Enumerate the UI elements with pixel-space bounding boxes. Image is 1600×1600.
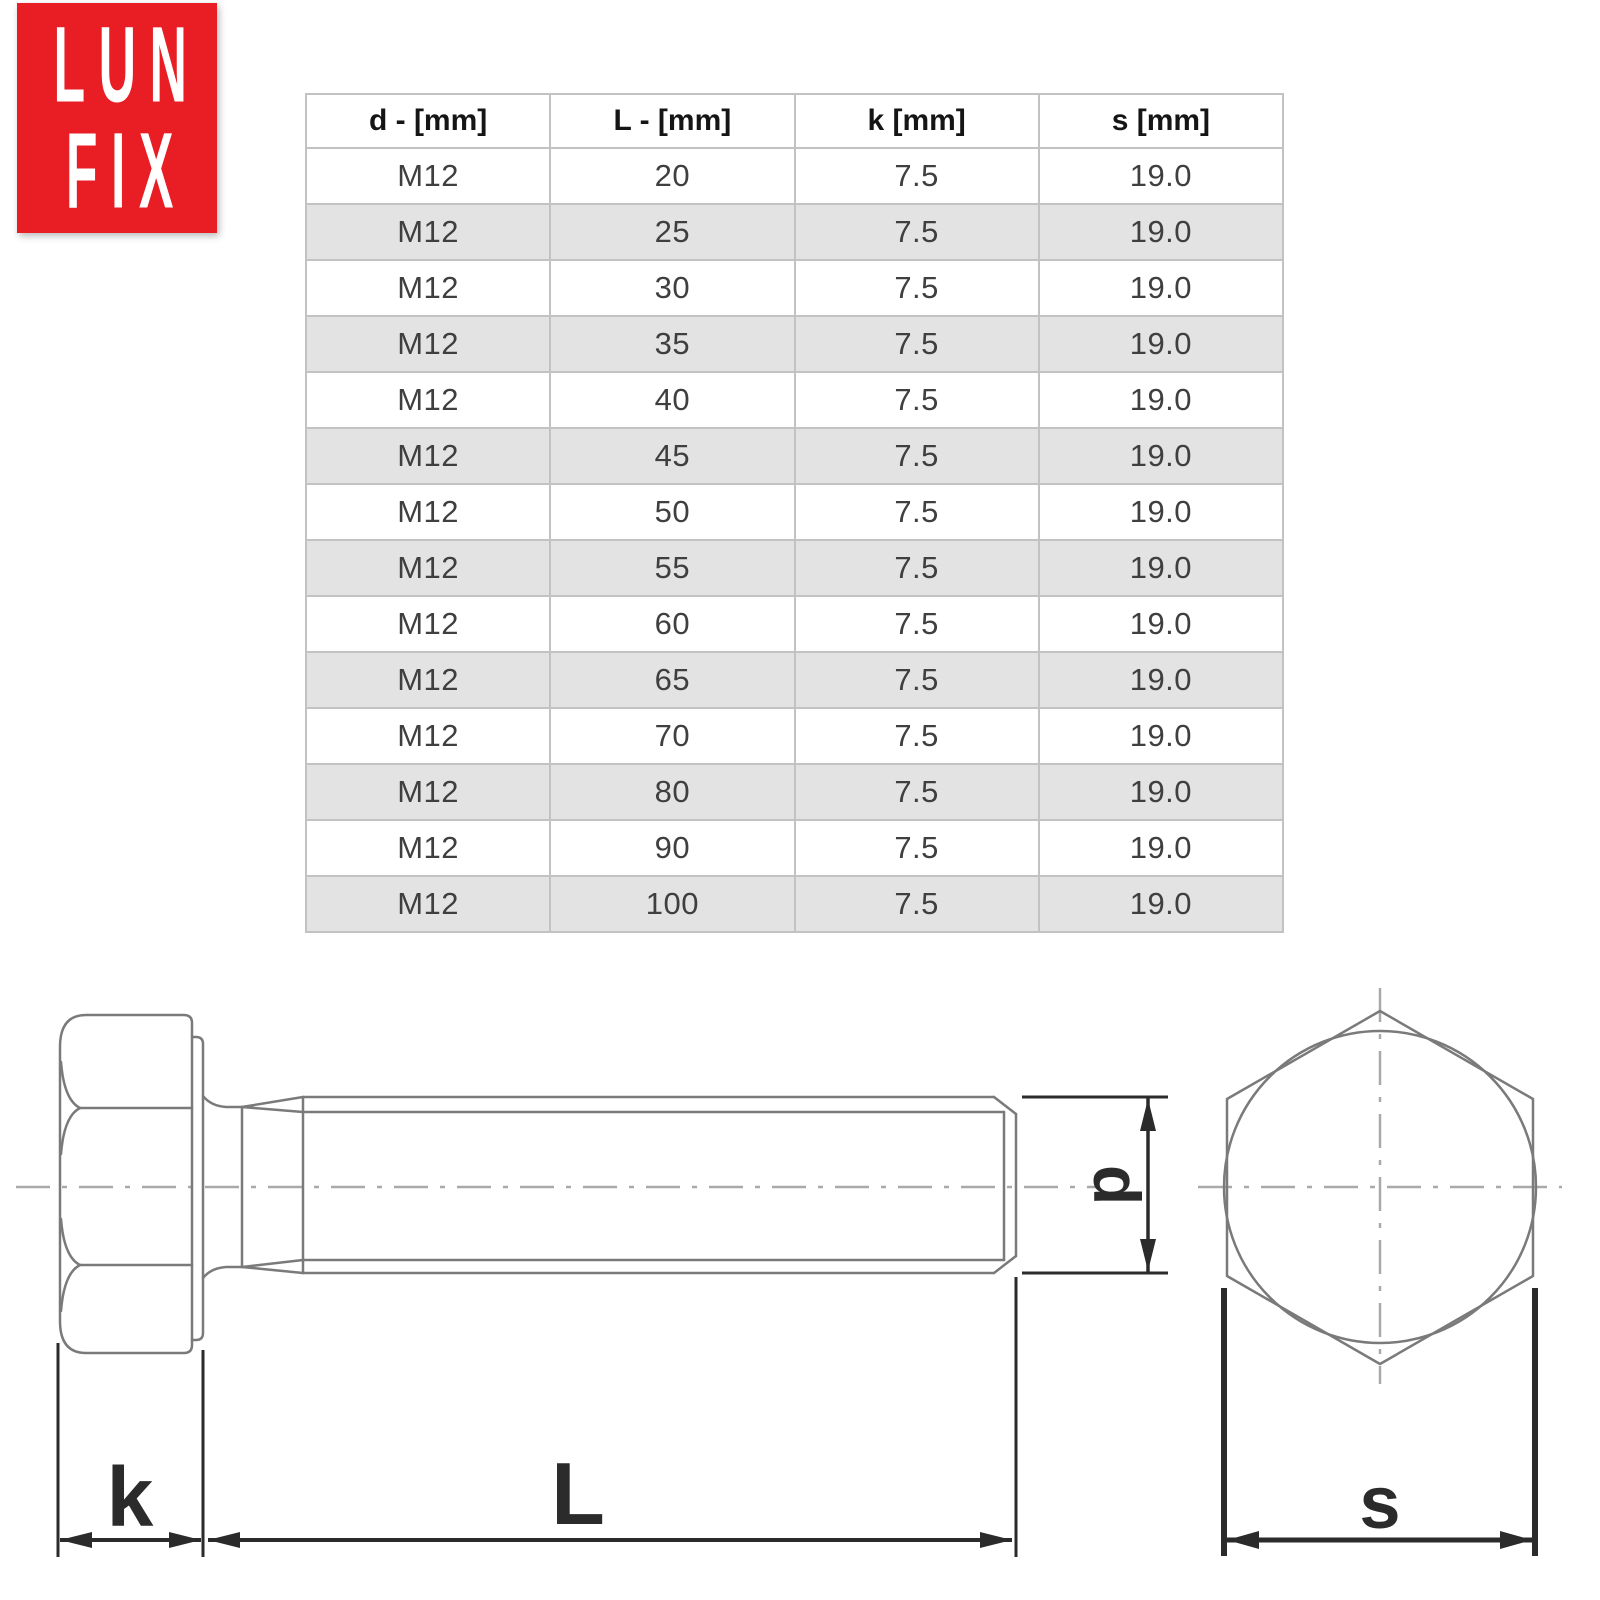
arrowhead-k-right — [169, 1532, 201, 1548]
washer-face-collar — [192, 1037, 203, 1340]
head-chamfer-arc — [61, 1219, 80, 1265]
bolt-head-outline — [60, 1015, 192, 1353]
dim-label-d: d — [1080, 1165, 1154, 1205]
bolt-technical-drawing: k L d s — [0, 0, 1600, 1600]
shank-shoulder-bottom — [203, 1267, 242, 1278]
thread-runout-diagonal — [242, 1097, 303, 1107]
shank-shoulder-top — [203, 1096, 242, 1107]
bolt-side-view — [16, 1015, 1098, 1353]
dim-label-s: s — [1359, 1461, 1400, 1544]
arrowhead-L-left — [208, 1532, 240, 1548]
arrowhead-k-left — [60, 1532, 92, 1548]
product-image: LUN FIX d - [mm] L - [mm] k [mm] s [mm] … — [0, 0, 1600, 1600]
arrowhead-L-right — [980, 1532, 1012, 1548]
thread-runout-diagonal — [242, 1267, 303, 1273]
arrowhead-s-right — [1500, 1531, 1532, 1549]
dim-label-k: k — [107, 1450, 154, 1544]
head-chamfer-arc — [61, 1265, 80, 1311]
bolt-end-view — [1198, 988, 1562, 1384]
arrowhead-d-top — [1140, 1099, 1156, 1131]
arrowhead-d-bottom — [1140, 1239, 1156, 1271]
head-chamfer-arc — [61, 1108, 80, 1154]
thread-runout-diagonal — [242, 1107, 303, 1112]
head-chamfer-arc — [61, 1062, 80, 1108]
arrowhead-s-left — [1227, 1531, 1259, 1549]
thread-runout-diagonal — [242, 1260, 303, 1267]
dim-label-L: L — [551, 1444, 605, 1543]
